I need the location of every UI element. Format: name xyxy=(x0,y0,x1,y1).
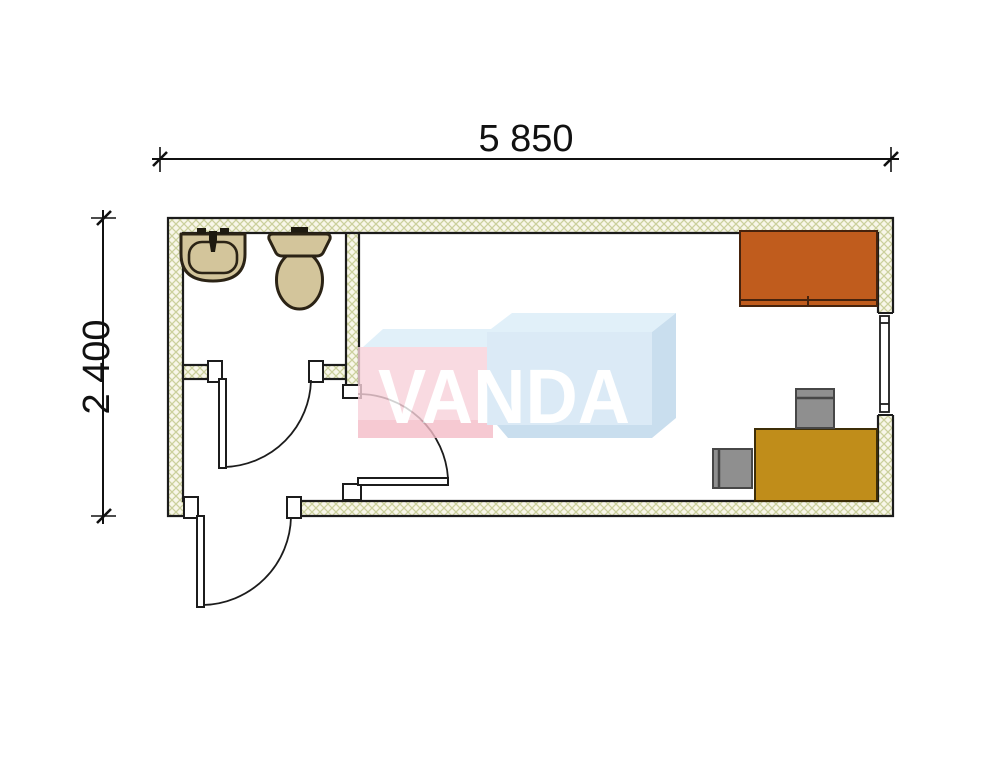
door-leaf xyxy=(219,379,226,468)
door-swing-arc xyxy=(225,380,311,467)
bathroom-partition-right xyxy=(322,365,346,379)
toilet-bowl xyxy=(277,251,323,309)
door-leaf xyxy=(358,478,448,485)
door-jamb xyxy=(343,484,361,500)
wardrobe xyxy=(740,231,877,306)
watermark: VANDA xyxy=(358,313,676,440)
sink xyxy=(181,228,245,281)
chair-top xyxy=(796,389,834,428)
door-jamb xyxy=(309,361,323,382)
watermark-blue-right-bevel xyxy=(652,313,676,438)
dimension-left: 2 400 xyxy=(76,210,118,524)
floor-plan-drawing: 5 850 2 400 xyxy=(0,0,1000,757)
watermark-text: VANDA xyxy=(378,354,630,440)
door-jamb xyxy=(184,497,198,518)
bathroom-door xyxy=(208,361,323,468)
height-dimension-label: 2 400 xyxy=(76,319,118,414)
tap-handle-icon xyxy=(220,228,229,234)
dimension-top: 5 850 xyxy=(152,118,899,172)
watermark-blue-top-bevel xyxy=(487,313,676,332)
wardrobe-body xyxy=(740,231,877,306)
interior-wall-vertical xyxy=(346,233,359,387)
tap-handle-icon xyxy=(197,228,206,234)
entrance-opening xyxy=(198,498,290,518)
door-jamb xyxy=(287,497,301,518)
door-leaf xyxy=(197,516,204,607)
width-dimension-label: 5 850 xyxy=(478,118,573,160)
chair-seat xyxy=(796,389,834,428)
toilet xyxy=(269,227,330,309)
chair-left xyxy=(713,449,752,488)
bathroom-partition-left xyxy=(183,365,210,379)
door-swing-arc xyxy=(203,517,291,605)
toilet-tank xyxy=(269,234,330,256)
desk xyxy=(755,429,877,501)
window-frame xyxy=(880,316,889,412)
